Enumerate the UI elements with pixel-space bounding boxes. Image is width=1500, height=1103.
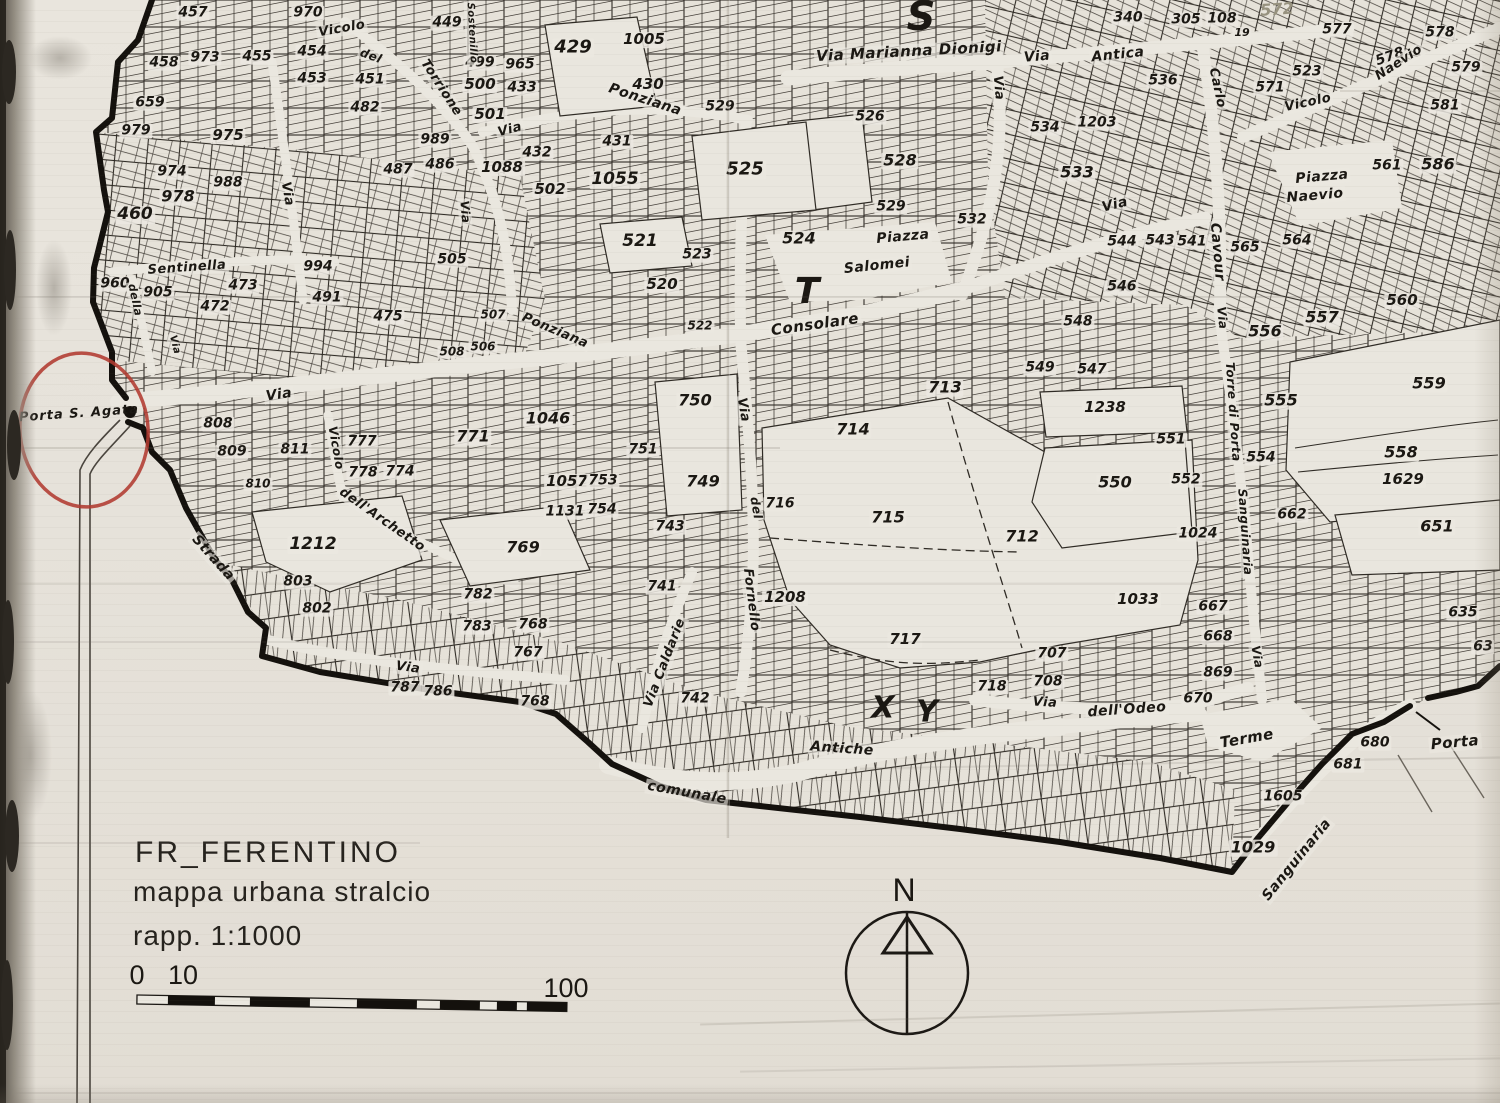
parcel-number-label: 564 <box>1280 234 1313 249</box>
parcel-number-label: 716 <box>763 497 796 512</box>
street-name-label: Vicolo <box>326 423 347 472</box>
parcel-number-label: 554 <box>1244 451 1277 466</box>
parcel-number-label: 715 <box>869 510 906 527</box>
street-name-label: Carlo <box>1206 65 1229 111</box>
parcel-number-label: 528 <box>881 153 918 170</box>
parcel-number-label: 786 <box>421 685 454 700</box>
parcel-number-label: 453 <box>295 72 328 87</box>
parcel-number-label: 559 <box>1410 376 1447 393</box>
parcel-number-label: 771 <box>454 429 491 446</box>
street-name-label: Torre di Porta <box>1223 360 1243 464</box>
parcel-number-label: 905 <box>141 286 174 301</box>
parcel-number-label: 541 <box>1175 235 1208 250</box>
parcel-number-label: 1024 <box>1177 527 1220 542</box>
parcel-number-label: 810 <box>243 478 272 491</box>
street-name-label: Piazza <box>874 227 932 247</box>
parcel-number-label: 501 <box>472 107 507 123</box>
parcel-number-label: 19 <box>1232 27 1251 39</box>
parcel-number-label: 1131 <box>544 505 587 520</box>
parcel-number-label: 546 <box>1105 280 1138 295</box>
parcel-number-label: 571 <box>1253 81 1286 96</box>
street-name-label: Via <box>458 198 473 226</box>
parcel-number-label: 1238 <box>1082 400 1128 416</box>
street-name-label: Via <box>1030 695 1059 710</box>
parcel-number-label: 431 <box>600 135 633 150</box>
street-name-label: del <box>356 46 385 67</box>
parcel-number-label: 108 <box>1205 12 1238 27</box>
parcel-number-label: 473 <box>226 279 259 294</box>
parcel-number-label: 782 <box>461 588 494 603</box>
parcel-number-label: 973 <box>188 51 221 66</box>
parcel-number-label: 502 <box>532 182 567 198</box>
parcel-number-label: 714 <box>834 422 871 439</box>
parcel-number-label: 712 <box>1003 529 1040 546</box>
parcel-number-label: 491 <box>310 291 343 306</box>
parcel-number-label: 475 <box>371 310 404 325</box>
parcel-number-label: 751 <box>626 443 659 458</box>
parcel-number-label: 750 <box>676 393 713 410</box>
street-name-label: Strada <box>188 531 239 585</box>
parcel-number-label: 811 <box>278 443 311 458</box>
parcel-number-label: 774 <box>383 465 416 480</box>
parcel-number-label: 520 <box>644 277 679 293</box>
parcel-number-label: 557 <box>1303 310 1340 327</box>
map-subtitle: mappa urbana stralcio <box>133 876 431 908</box>
parcel-number-label: 558 <box>1382 445 1419 462</box>
parcel-number-label: 578 <box>1423 26 1456 41</box>
map-letter-label: X <box>871 692 894 724</box>
parcel-number-label: 1605 <box>1262 790 1305 805</box>
parcel-number-label: 523 <box>680 248 713 263</box>
parcel-number-label: 487 <box>381 163 414 178</box>
parcel-number-label: 651 <box>1418 519 1455 536</box>
scale-tick-10: 10 <box>168 961 198 989</box>
parcel-number-label: 670 <box>1181 692 1214 707</box>
parcel-number-label: 561 <box>1370 159 1403 174</box>
map-letter-label: T <box>795 273 820 311</box>
parcel-number-label: 1203 <box>1076 116 1119 131</box>
street-name-label: Consolare <box>768 311 862 339</box>
parcel-number-label: 713 <box>926 380 963 397</box>
parcel-number-label: 549 <box>1023 361 1056 376</box>
parcel-number-label: 506 <box>468 341 497 354</box>
parcel-number-label: 988 <box>211 176 244 191</box>
parcel-number-label: 979 <box>119 124 152 139</box>
parcel-number-label: 451 <box>353 73 386 88</box>
parcel-number-label: 777 <box>345 435 378 450</box>
parcel-number-label: 708 <box>1031 675 1064 690</box>
parcel-number-label: 534 <box>1028 121 1061 136</box>
parcel-number-label: 460 <box>115 206 155 224</box>
street-name-label: Naevio <box>1284 186 1346 206</box>
street-name-label: del <box>748 494 765 522</box>
street-name-label: dell'Archetto <box>335 484 429 555</box>
parcel-number-label: 521 <box>620 233 660 251</box>
parcel-number-label: 305 <box>1169 13 1202 28</box>
map-title: FR_FERENTINO <box>135 836 401 870</box>
parcel-number-label: 586 <box>1419 157 1456 174</box>
parcel-number-label: 753 <box>586 474 619 489</box>
street-name-label: Sanguinaria <box>1236 486 1255 577</box>
parcel-number-label: 1029 <box>1229 840 1278 857</box>
parcel-number-label: 472 <box>198 300 231 315</box>
parcel-number-label: 552 <box>1169 473 1202 488</box>
street-name-label: Via <box>1248 643 1265 672</box>
street-name-label: Vicolo <box>316 18 369 40</box>
street-name-label: Piazza <box>1293 167 1351 187</box>
parcel-number-label: 555 <box>1262 393 1299 410</box>
parcel-number-label: 769 <box>504 540 541 557</box>
parcel-number-label: 524 <box>780 231 817 248</box>
parcel-number-label: 809 <box>215 445 248 460</box>
parcel-number-label: 742 <box>678 692 711 707</box>
parcel-number-label: 529 <box>703 100 736 115</box>
parcel-number-label: 532 <box>955 213 988 228</box>
compass-north-label: N <box>892 874 915 908</box>
parcel-number-label: 523 <box>1290 65 1323 80</box>
parcel-number-label: 1629 <box>1380 472 1426 488</box>
parcel-number-label: 536 <box>1146 74 1179 89</box>
parcel-number-label: 529 <box>874 200 907 215</box>
street-name-label: Via <box>734 395 752 425</box>
parcel-number-label: 449 <box>430 16 463 31</box>
parcel-number-label: 1057 <box>544 474 590 490</box>
street-name-label: Antica <box>1089 45 1147 66</box>
street-name-label: comunale <box>644 778 729 807</box>
scale-tick-100: 100 <box>543 974 588 1002</box>
parcel-number-label: 787 <box>388 681 421 696</box>
parcel-number-label: 965 <box>503 58 536 73</box>
parcel-number-label: 718 <box>975 680 1008 695</box>
street-name-label: Via <box>1099 194 1132 216</box>
street-name-label: Via <box>263 386 295 405</box>
parcel-number-label: 550 <box>1096 475 1133 492</box>
parcel-number-label: 1212 <box>287 536 338 554</box>
parcel-number-label: 454 <box>295 45 328 60</box>
parcel-number-label: 970 <box>291 6 324 21</box>
scanned-cadastral-map: Porta S. Agata N 0 10 100 45797044942910… <box>0 0 1500 1103</box>
parcel-number-label: 482 <box>348 101 381 116</box>
parcel-number-label: 526 <box>853 110 886 125</box>
parcel-number-label: 565 <box>1228 241 1261 256</box>
map-letter-label: Y <box>916 696 938 728</box>
map-letter-label: 572 <box>1260 0 1294 19</box>
parcel-number-label: 507 <box>478 309 507 322</box>
parcel-number-label: 525 <box>724 161 766 180</box>
parcel-number-label: 432 <box>520 146 553 161</box>
street-name-label: Terme <box>1217 726 1277 752</box>
parcel-number-label: 533 <box>1058 165 1095 182</box>
parcel-number-label: 500 <box>462 77 497 93</box>
map-scale-ratio: rapp. 1:1000 <box>133 920 302 952</box>
parcel-number-label: 667 <box>1196 600 1229 615</box>
parcel-number-label: 974 <box>155 165 188 180</box>
parcel-number-label: 543 <box>1143 234 1176 249</box>
parcel-number-label: 1055 <box>589 171 640 189</box>
parcel-number-label: 659 <box>133 96 166 111</box>
parcel-number-label: 681 <box>1331 758 1364 773</box>
parcel-number-label: 63 <box>1471 640 1494 655</box>
parcel-number-label: 455 <box>240 50 273 65</box>
parcel-number-label: 544 <box>1105 235 1138 250</box>
parcel-number-label: 1046 <box>524 411 573 428</box>
parcel-number-label: 767 <box>511 646 544 661</box>
parcel-number-label: 556 <box>1246 324 1283 341</box>
street-name-label: Sostenillo <box>464 0 478 65</box>
parcel-number-label: 1088 <box>479 160 525 176</box>
parcel-number-label: 551 <box>1154 433 1187 448</box>
street-name-label: Via <box>1214 304 1229 332</box>
street-name-label: Antiche <box>808 739 876 758</box>
parcel-number-label: 577 <box>1320 23 1353 38</box>
parcel-number-label: 717 <box>887 632 922 648</box>
parcel-number-label: 768 <box>516 618 549 633</box>
parcel-number-label: 754 <box>585 503 618 518</box>
porta-s-agata-label: Porta S. Agata <box>18 403 139 425</box>
parcel-number-label: 429 <box>552 39 594 58</box>
parcel-number-label: 978 <box>159 189 196 206</box>
parcel-number-label: 975 <box>210 128 245 144</box>
parcel-number-label: 869 <box>1201 666 1234 681</box>
parcel-number-label: 486 <box>423 158 456 173</box>
parcel-number-label: 522 <box>685 320 714 333</box>
parcel-number-label: 340 <box>1111 11 1144 26</box>
parcel-number-label: 1033 <box>1115 592 1161 608</box>
parcel-number-label: 508 <box>437 346 466 359</box>
parcel-number-label: 581 <box>1428 99 1461 114</box>
parcel-number-label: 505 <box>435 253 468 268</box>
street-name-label: Sentinella <box>145 258 229 277</box>
parcel-number-label: 433 <box>505 81 538 96</box>
parcel-number-label: 803 <box>281 575 314 590</box>
street-name-label: Fornello <box>740 566 762 634</box>
street-name-label: Sanguinaria <box>1258 815 1335 905</box>
parcel-number-label: 548 <box>1061 315 1094 330</box>
parcel-number-label: 808 <box>201 417 234 432</box>
parcel-number-label: 668 <box>1201 630 1234 645</box>
street-name-label: Via <box>166 332 182 357</box>
parcel-number-label: 457 <box>176 6 209 21</box>
street-name-label: Via Marianna Dionigi <box>814 39 1004 65</box>
parcel-number-label: 749 <box>684 474 721 491</box>
parcel-number-label: 458 <box>147 56 180 71</box>
street-name-label: Via <box>393 659 423 676</box>
parcel-number-label: 783 <box>460 620 493 635</box>
street-name-label: Porta <box>1428 733 1482 753</box>
parcel-number-label: 743 <box>653 520 686 535</box>
parcel-number-label: 768 <box>518 695 551 710</box>
street-name-label: Via <box>278 179 296 209</box>
parcel-number-label: 802 <box>300 602 333 617</box>
parcel-number-label: 560 <box>1384 293 1419 309</box>
parcel-number-label: 778 <box>346 466 379 481</box>
street-name-label: Salomei <box>841 255 912 277</box>
parcel-number-label: 994 <box>301 260 334 275</box>
parcel-number-label: 579 <box>1449 61 1482 76</box>
scale-tick-0: 0 <box>129 961 144 989</box>
parcel-number-label: 1005 <box>621 32 667 48</box>
map-letter-label: S <box>907 0 936 38</box>
parcel-number-label: 662 <box>1275 508 1308 523</box>
street-name-label: Torrione <box>417 56 466 121</box>
parcel-number-label: 547 <box>1075 363 1108 378</box>
street-name-label: Via <box>990 73 1006 103</box>
street-name-label: Vicolo <box>1281 91 1334 115</box>
parcel-number-label: 680 <box>1358 736 1391 751</box>
street-name-label: Cavour <box>1207 220 1227 283</box>
parcel-number-label: 1208 <box>762 590 808 606</box>
parcel-number-label: 741 <box>645 580 678 595</box>
street-name-label: Ponziana <box>518 310 592 352</box>
parcel-number-label: 707 <box>1035 647 1068 662</box>
street-name-label: Via <box>1021 48 1053 65</box>
street-name-label: dell'Odeo <box>1085 700 1169 720</box>
parcel-number-label: 635 <box>1446 606 1479 621</box>
parcel-number-label: 989 <box>418 133 451 148</box>
